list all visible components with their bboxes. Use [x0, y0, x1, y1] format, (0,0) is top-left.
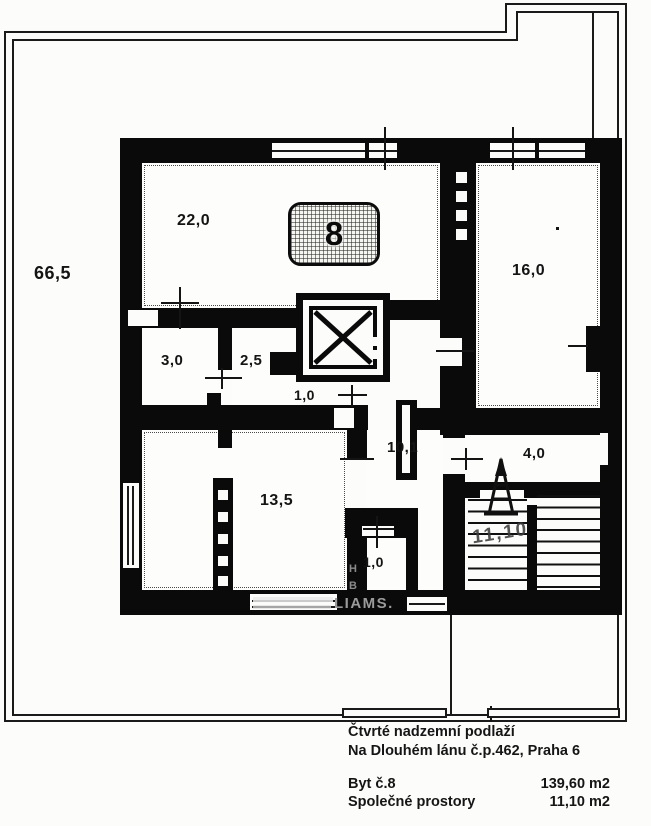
area-row-label: Byt č.8	[348, 775, 396, 793]
tick-mark	[221, 368, 223, 389]
terrace-divider-line	[450, 613, 452, 716]
door-corridor-entry	[443, 438, 465, 474]
floorplan-page: 66,5	[0, 0, 651, 826]
wall-elevator-step	[270, 352, 298, 375]
room-right	[476, 163, 600, 408]
tick-mark	[363, 528, 394, 530]
elevator-detail-square	[371, 350, 380, 359]
window-top-1-divider	[365, 143, 369, 158]
area-row-label: Společné prostory	[348, 793, 475, 811]
wall-stub-bedroom	[218, 430, 232, 448]
room-label-corridor: 10,1	[387, 439, 418, 456]
wall-closet-right	[406, 508, 418, 590]
shaft-vent-square	[456, 229, 467, 240]
tick-mark	[568, 345, 588, 347]
footer-text-block: Čtvrté nadzemní podlaží Na Dlouhém lánu …	[348, 723, 610, 811]
wall-room16-notch	[586, 326, 600, 372]
wardrobe-square	[218, 534, 228, 544]
boundary-outer-topright	[505, 3, 627, 5]
tick-mark	[451, 458, 483, 460]
boundary-inner-top	[12, 39, 517, 41]
boundary-outer-step	[505, 3, 507, 33]
watermark-blur-bar	[253, 597, 333, 602]
shaft-vent-square	[456, 172, 467, 183]
room-label-living: 22,0	[177, 212, 210, 230]
boundary-notch-line	[592, 11, 594, 140]
balcony-door-line	[132, 486, 134, 565]
wall-stair-divider	[527, 505, 537, 590]
area-row-value: 139,60 m2	[541, 775, 610, 793]
wardrobe-square	[218, 512, 228, 522]
boundary-inner-left	[12, 39, 14, 716]
tick-mark	[340, 458, 374, 460]
area-row-value: 11,10 m2	[550, 793, 610, 811]
tick-mark	[376, 516, 378, 548]
window-entry-right	[600, 433, 608, 465]
wardrobe-square	[218, 576, 228, 586]
watermark-text: B	[349, 580, 358, 592]
room-label-bath: 3,0	[161, 352, 183, 369]
window-top-1-mullion	[272, 150, 397, 152]
area-row: Byt č.8 139,60 m2	[348, 775, 610, 793]
room-label-bedroom: 13,5	[260, 492, 293, 510]
tick-mark	[179, 287, 181, 329]
tick-mark	[465, 448, 467, 470]
tick-mark	[205, 377, 242, 379]
tick-mark	[161, 302, 199, 304]
wall-room16-south	[440, 408, 622, 435]
door-living-bath	[128, 310, 158, 326]
boundary-outer-top	[4, 31, 507, 33]
elevator-x-icon	[313, 310, 373, 365]
room-label-right: 16,0	[512, 262, 545, 280]
unit-number-badge: 8	[288, 202, 380, 266]
area-row: Společné prostory 11,10 m2	[348, 793, 610, 811]
wall-mid-band	[120, 405, 368, 430]
boundary-outer-left	[4, 31, 6, 722]
wardrobe-square	[218, 556, 228, 566]
balcony-door-left	[123, 483, 139, 568]
area-table: Byt č.8 139,60 m2 Společné prostory 11,1…	[348, 775, 610, 811]
tick-mark	[556, 227, 559, 230]
tick-mark	[351, 385, 353, 407]
wall-bath-wc-upper	[218, 308, 232, 370]
room-label-terrace: 66,5	[34, 263, 71, 284]
shaft-vent-square	[456, 191, 467, 202]
stair-direction-arrow-icon	[482, 455, 520, 521]
boundary-outer-bottom	[4, 720, 627, 722]
room-label-hall: 1,0	[294, 387, 315, 403]
wall-corridor-west-up	[347, 430, 367, 458]
railing-segment	[487, 708, 620, 718]
watermark-text: H	[349, 563, 358, 575]
window-bottom-2-line	[409, 603, 445, 605]
wall-living-south-e	[388, 300, 440, 320]
room-label-entry: 4,0	[523, 445, 545, 462]
wall-room16-left	[462, 338, 476, 410]
tick-mark	[384, 127, 386, 170]
room-bedroom	[142, 430, 347, 590]
door-mid-band	[334, 408, 354, 428]
wall-right	[600, 138, 622, 615]
watermark-blur-bar	[253, 605, 331, 609]
window-top-2-divider	[535, 143, 539, 158]
boundary-inner-topright	[516, 11, 619, 13]
elevator-detail-square	[371, 337, 380, 346]
address-line: Na Dlouhém lánu č.p.462, Praha 6	[348, 742, 610, 761]
wardrobe-square	[218, 490, 228, 500]
watermark-text: LIAMS.	[334, 595, 394, 612]
balcony-door-line	[127, 486, 129, 565]
room-label-wc: 2,5	[240, 352, 262, 369]
boundary-inner-step	[516, 11, 518, 41]
floor-title: Čtvrté nadzemní podlaží	[348, 723, 610, 742]
room-label-closet: 1,0	[363, 554, 384, 570]
boundary-outer-right	[625, 3, 627, 722]
railing-segment	[342, 708, 447, 718]
tick-mark	[512, 127, 514, 170]
shaft-vent-square	[456, 210, 467, 221]
tick-mark	[436, 350, 474, 352]
wall-corridor-west-low	[347, 512, 367, 590]
wall-below-entrance	[440, 366, 462, 410]
stair-flight-right	[537, 495, 600, 590]
unit-number: 8	[325, 215, 343, 253]
